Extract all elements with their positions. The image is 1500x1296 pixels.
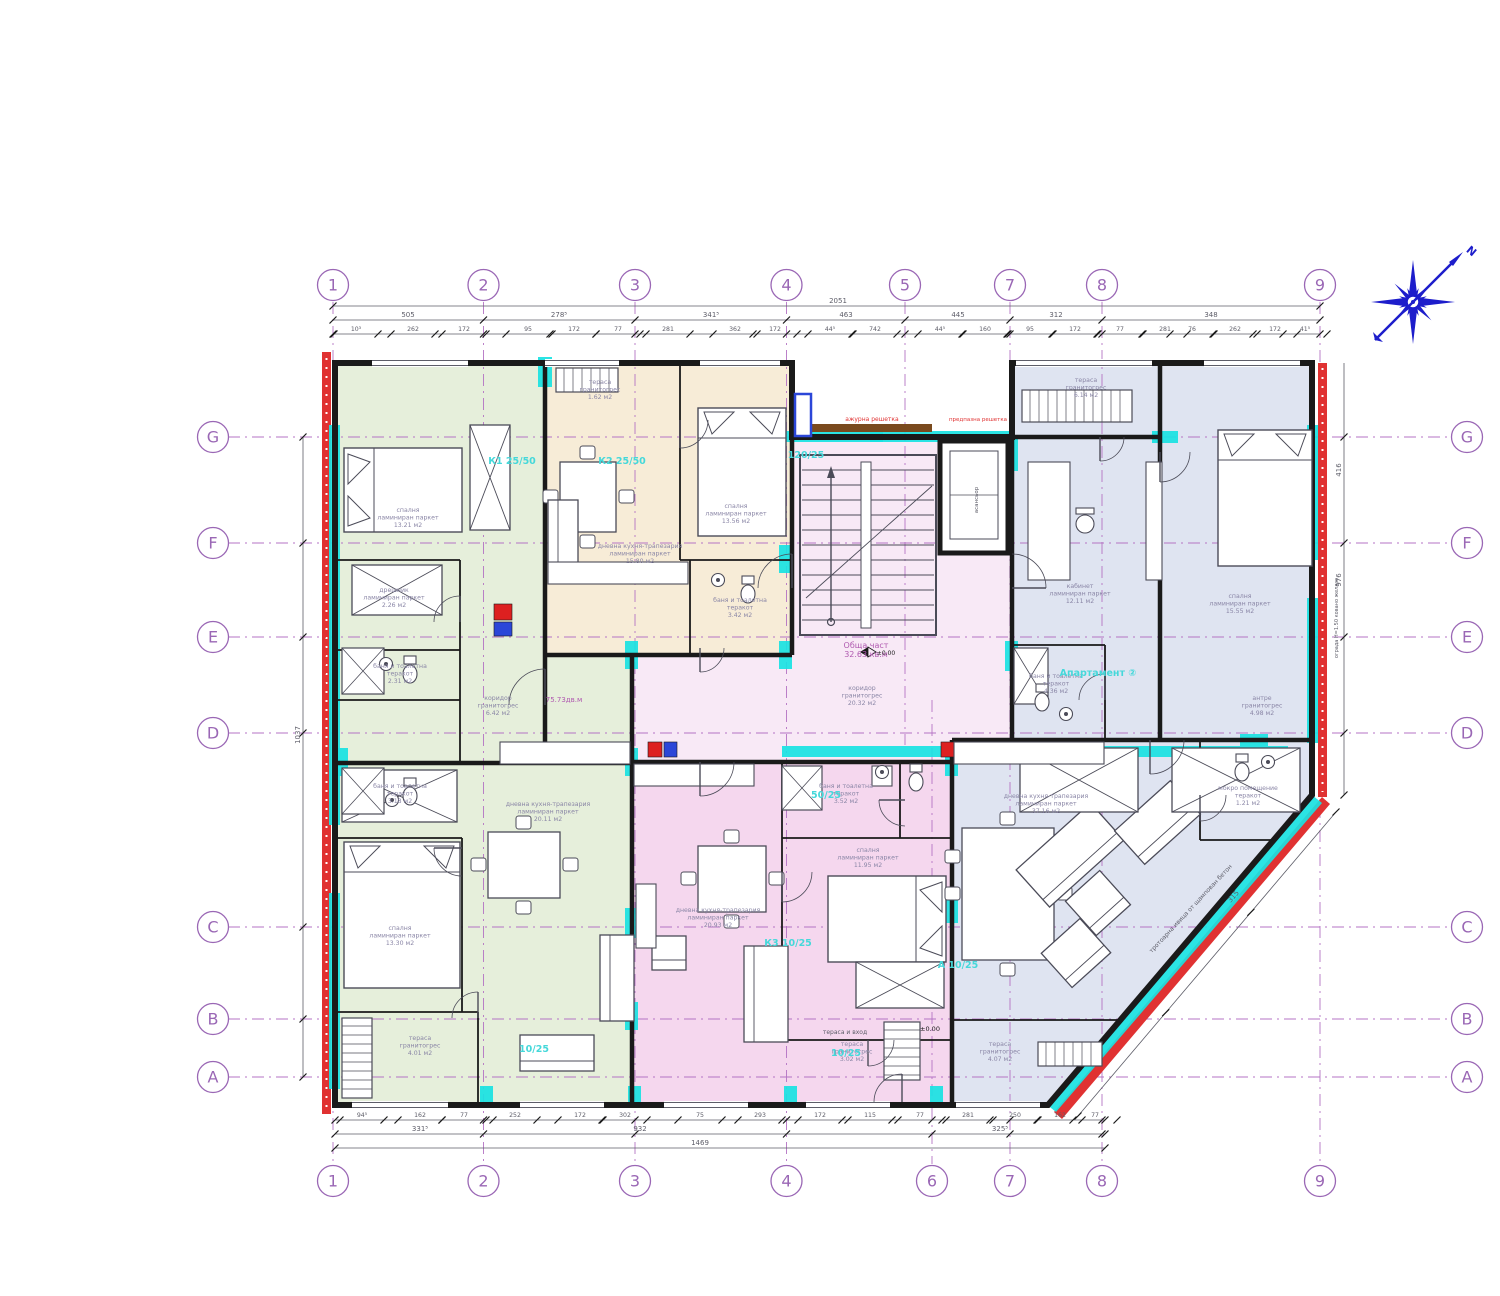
chair	[1000, 812, 1015, 825]
office-chair	[1076, 515, 1094, 533]
dining-table	[488, 832, 560, 898]
bed	[1218, 430, 1312, 566]
apartment-code: К1 25/50	[488, 456, 536, 467]
toilet	[1035, 693, 1049, 711]
grid-bubble-label: C	[1461, 918, 1472, 937]
compass-needle	[1375, 258, 1457, 340]
grid-bubble-label: 8	[1097, 1172, 1107, 1191]
bed	[828, 876, 946, 962]
dim-text: 94⁵	[357, 1112, 368, 1119]
dim-text: 742	[869, 326, 881, 333]
apartment-code: А 10/25	[938, 960, 979, 971]
toilet-tank	[910, 764, 922, 772]
dim-text: 77	[1091, 1112, 1099, 1119]
dim-text: 293	[754, 1112, 766, 1119]
lounger	[884, 1022, 920, 1080]
floor-plan-svg: 1234578912346789GFEDCBAGFEDCBA 505278⁵34…	[0, 0, 1500, 1296]
grid-bubble-label: F	[1462, 534, 1471, 553]
dim-text: 932	[633, 1125, 646, 1133]
apartment-code: 50/25	[811, 790, 841, 801]
dimension-tick	[1333, 809, 1340, 816]
insulation-right	[1318, 363, 1327, 797]
dim-text: 252	[509, 1112, 521, 1119]
dim-text: 115	[864, 1112, 876, 1119]
grid-bubble-label: E	[208, 628, 218, 647]
dim-text: 162	[414, 1112, 426, 1119]
dim-text: 281	[1159, 326, 1171, 333]
grid-bubble-label: E	[1462, 628, 1472, 647]
sink-drain	[1266, 760, 1270, 764]
chair	[724, 830, 739, 843]
dim-text: 302	[619, 1112, 631, 1119]
grid-bubble-label: 1	[328, 276, 338, 295]
grid-bubble-label: G	[207, 428, 219, 447]
dining-table	[698, 846, 766, 912]
dim-text: 77	[460, 1112, 468, 1119]
grid-bubble-label: 1	[328, 1172, 338, 1191]
dim-text: 416	[1335, 463, 1343, 477]
grid-bubble-label: B	[208, 1010, 219, 1029]
grid-bubble-label: G	[1461, 428, 1473, 447]
dim-text: 10³	[351, 326, 362, 333]
toilet	[1235, 763, 1249, 781]
annotation-text: тераса и вход	[823, 1029, 867, 1036]
grid-bubble-label: 9	[1315, 1172, 1325, 1191]
counter	[636, 884, 656, 948]
dimension-tick	[1247, 909, 1254, 916]
stove-mark	[941, 742, 955, 757]
dim-text-total: 1469	[691, 1139, 709, 1147]
annotation-text: ажурна решетка	[845, 416, 899, 423]
dim-text: 172	[1269, 326, 1281, 333]
apartment-code: 120/25	[788, 450, 825, 461]
counter	[548, 562, 688, 584]
grid-bubble-label: 7	[1005, 1172, 1015, 1191]
toilet	[909, 773, 923, 791]
grid-bubble-label: F	[208, 534, 217, 553]
dim-text: 76	[1188, 326, 1196, 333]
grid-bubble-label: 4	[781, 276, 791, 295]
chair	[945, 850, 960, 863]
dim-text: 1037	[294, 726, 302, 744]
dim-text: 172	[574, 1112, 586, 1119]
dim-text: 445	[951, 311, 964, 319]
chair	[945, 887, 960, 900]
annotation-text: топлоизолация ЕПС 8 см	[322, 622, 328, 687]
stove-mark	[648, 742, 662, 757]
dim-text: 463	[839, 311, 852, 319]
dim-text: 75	[696, 1112, 704, 1119]
counter	[954, 742, 1104, 764]
sink-drain	[880, 770, 884, 774]
dim-text: 331⁵	[412, 1125, 428, 1133]
chair	[516, 901, 531, 914]
floor-plan-page: 1234578912346789GFEDCBAGFEDCBA 505278⁵34…	[0, 0, 1500, 1296]
chair	[580, 535, 595, 548]
chair	[681, 872, 696, 885]
lounger	[1038, 1042, 1102, 1066]
counter	[500, 742, 630, 764]
dim-text-total: 2051	[829, 297, 847, 305]
grid-bubble-label: 3	[630, 1172, 640, 1191]
chair	[563, 858, 578, 871]
sofa	[600, 935, 634, 1021]
dim-text: 325⁵	[992, 1125, 1008, 1133]
annotation-text: 75.73дв.м	[546, 696, 583, 704]
grid-bubble-label: 6	[927, 1172, 937, 1191]
grid-bubble-label: 8	[1097, 276, 1107, 295]
dim-text: 77	[916, 1112, 924, 1119]
toilet-tank	[742, 576, 754, 584]
grid-bubble-label: B	[1462, 1010, 1473, 1029]
apartment-code: 10/25	[831, 1048, 861, 1059]
apartment-code: К2 25/50	[598, 456, 646, 467]
annotation-text: асансьор	[974, 486, 980, 513]
fridge-mark	[494, 622, 512, 636]
dim-text: 281	[962, 1112, 974, 1119]
annotation-text: ограда H=1.50 ковано желязо	[1334, 578, 1340, 658]
dim-text: 44⁵	[935, 326, 946, 333]
dimension-tick	[1075, 1113, 1082, 1120]
grid-bubble-label: 9	[1315, 276, 1325, 295]
grid-bubble-label: 4	[781, 1172, 791, 1191]
dimension-tick	[1324, 331, 1331, 338]
dim-text: 281	[662, 326, 674, 333]
counter	[634, 764, 754, 786]
dim-text: 505	[401, 311, 414, 319]
compass-rose: N	[1371, 243, 1479, 344]
chair	[580, 446, 595, 459]
grid-bubble-label: C	[207, 918, 218, 937]
pergola-wood-strip	[800, 424, 932, 432]
sink-drain	[716, 578, 720, 582]
dimension-tick	[1114, 1117, 1121, 1124]
dim-text: 172	[1069, 326, 1081, 333]
dim-text: 348	[1204, 311, 1217, 319]
compass-needle-head	[1449, 252, 1463, 266]
dim-text: 160	[979, 326, 991, 333]
dim-text: 77	[614, 326, 622, 333]
dim-text: 172	[568, 326, 580, 333]
dim-text: 362	[729, 326, 741, 333]
chair	[471, 858, 486, 871]
dim-text: 341⁵	[703, 311, 719, 319]
annotation-text: ±0.00	[920, 1025, 940, 1033]
annotation-text: ±0.00	[877, 650, 896, 657]
grid-bubble-label: D	[207, 724, 219, 743]
counter	[1076, 508, 1094, 514]
dim-text: 95	[524, 326, 532, 333]
dim-text: 262	[407, 326, 419, 333]
sink-drain	[1064, 712, 1068, 716]
dim-text: 278⁵	[551, 311, 567, 319]
grid-bubble-label: 2	[478, 276, 488, 295]
annotation-text: предпазна решетка	[949, 417, 1007, 423]
dim-text: 162	[1054, 1112, 1066, 1119]
grid-bubble-label: 5	[900, 276, 910, 295]
dim-text: 95	[1026, 326, 1034, 333]
dim-text: 41⁵	[1300, 326, 1311, 333]
grid-bubble-label: 2	[478, 1172, 488, 1191]
dim-text: 172	[458, 326, 470, 333]
grid-bubble-label: A	[208, 1068, 219, 1087]
sofa	[652, 936, 686, 970]
fridge-mark	[664, 742, 677, 757]
apartment-code: 10/25	[519, 1044, 549, 1055]
dim-text: 172	[769, 326, 781, 333]
dim-text: 44⁵	[825, 326, 836, 333]
grid-bubble-label: 3	[630, 276, 640, 295]
grid-bubble-label: 7	[1005, 276, 1015, 295]
dim-text: 172	[814, 1112, 826, 1119]
window-frame-symbol	[795, 394, 811, 436]
compass-north-label: N	[1464, 243, 1479, 259]
grid-bubble-label: D	[1461, 724, 1473, 743]
grid-bubble-label: A	[1462, 1068, 1473, 1087]
sofa	[548, 500, 578, 564]
sofa	[744, 946, 788, 1042]
chair	[1000, 963, 1015, 976]
stove-mark	[494, 604, 512, 620]
dim-text: 312	[1049, 311, 1062, 319]
dim-text: 250	[1009, 1112, 1021, 1119]
apartment-code: Апартамент ②	[1060, 668, 1137, 679]
lounger	[342, 1018, 372, 1098]
chair	[619, 490, 634, 503]
toilet-tank	[1236, 754, 1248, 762]
dimension-tick	[1162, 1009, 1169, 1016]
dim-text: 262	[1229, 326, 1241, 333]
chair	[516, 816, 531, 829]
dim-text: 77	[1116, 326, 1124, 333]
apartment-code: К3 10/25	[764, 938, 812, 949]
